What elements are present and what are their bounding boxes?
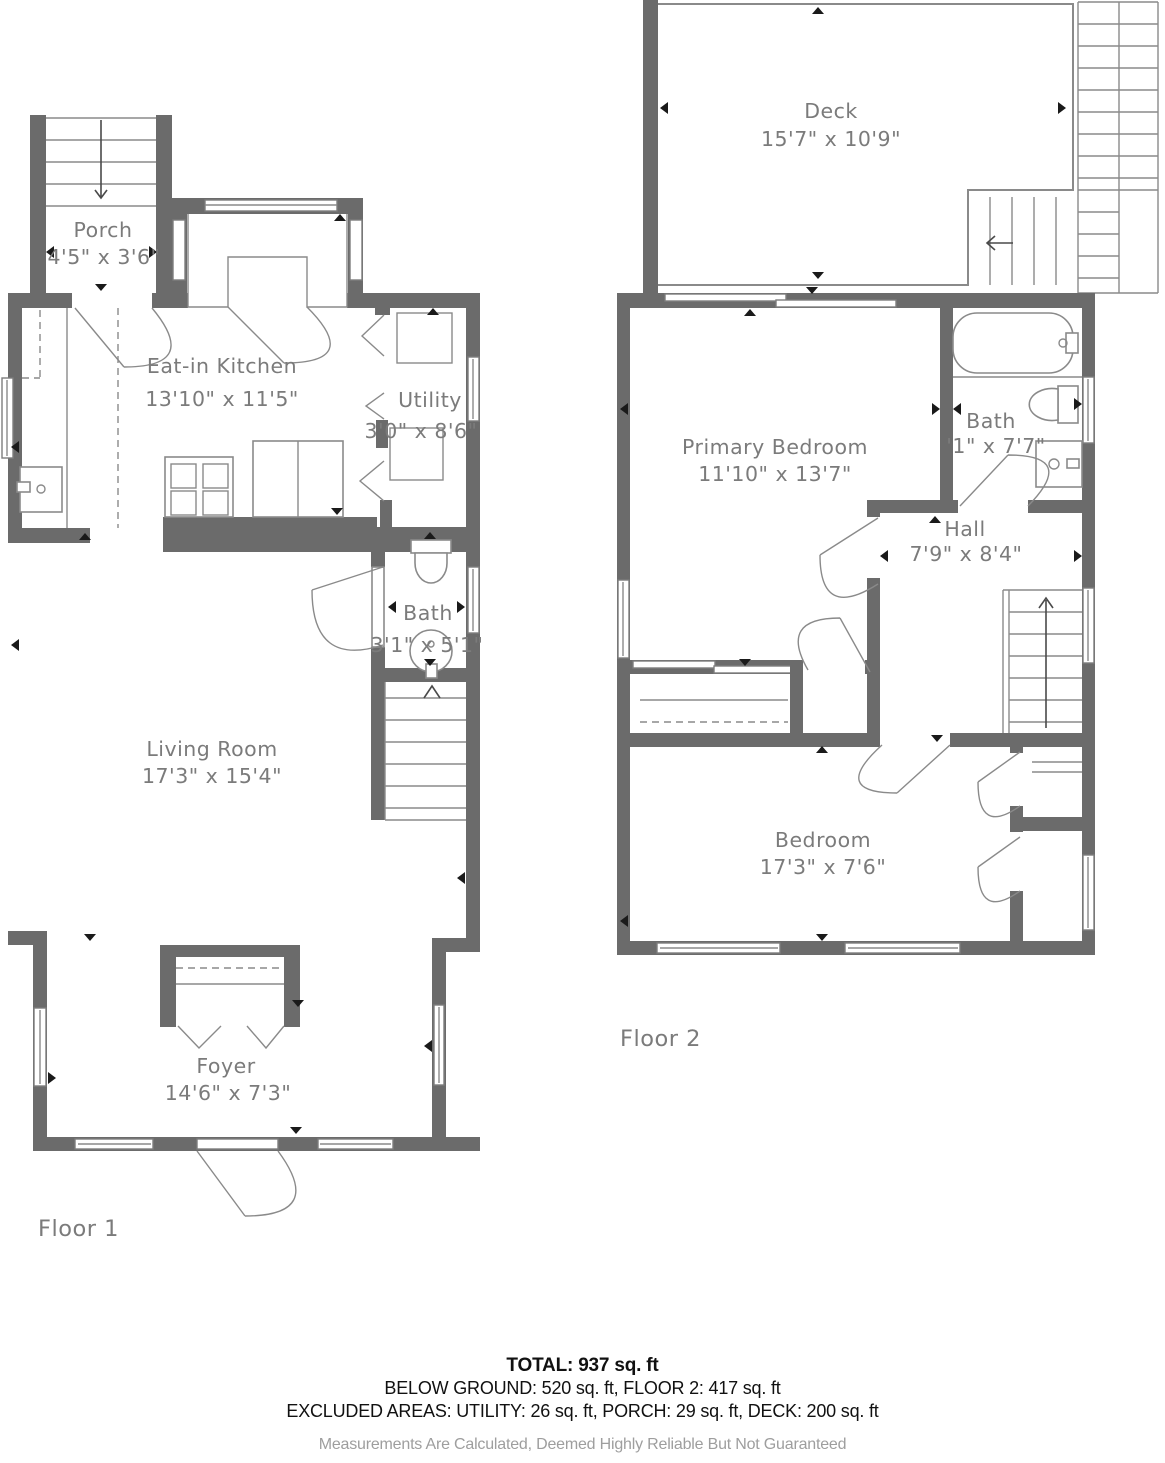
room-name: Bath xyxy=(966,409,1016,433)
room-label-hall: Hall 7'9" x 8'4" xyxy=(910,517,1023,566)
room-name: Porch xyxy=(74,218,133,242)
room-name: Eat-in Kitchen xyxy=(147,354,297,378)
room-name: Hall xyxy=(944,517,985,541)
room-name: Primary Bedroom xyxy=(682,435,868,459)
room-label-kitchen: Eat-in Kitchen 13'10" x 11'5" xyxy=(145,354,299,411)
summary-disclaimer: Measurements Are Calculated, Deemed High… xyxy=(0,1436,1165,1454)
room-dims: 11'10" x 13'7" xyxy=(698,462,852,486)
floor2-label: Floor 2 xyxy=(620,1026,701,1052)
room-dims: 14'6" x 7'3" xyxy=(165,1081,292,1105)
floor2-plan: Deck 15'7" x 10'9" Primary Bedroom 11'10… xyxy=(617,0,1158,1052)
room-label-living: Living Room 17'3" x 15'4" xyxy=(142,737,282,788)
floor1-plan: Porch 4'5" x 3'6" Eat-in Kitchen 13'10" … xyxy=(2,115,483,1242)
room-dims: 17'3" x 15'4" xyxy=(142,764,282,788)
room-label-bath2: Bath '1" x 7'7" xyxy=(946,409,1045,458)
room-dims: 13'10" x 11'5" xyxy=(145,387,299,411)
room-dims: 3'0" x 8'6" xyxy=(365,419,478,443)
summary-floors: BELOW GROUND: 520 sq. ft, FLOOR 2: 417 s… xyxy=(0,1377,1165,1400)
room-name: Living Room xyxy=(146,737,277,761)
room-dims: 15'7" x 10'9" xyxy=(761,127,901,151)
summary-excluded: EXCLUDED AREAS: UTILITY: 26 sq. ft, PORC… xyxy=(0,1400,1165,1423)
floor1-label: Floor 1 xyxy=(38,1216,119,1242)
room-name: Utility xyxy=(398,388,462,412)
room-label-porch: Porch 4'5" x 3'6" xyxy=(48,218,161,269)
primary-closet xyxy=(617,618,1095,793)
floorplan-page: { "floor1": { "label": "Floor 1", "rooms… xyxy=(0,0,1165,1463)
room-dims: 7'9" x 8'4" xyxy=(910,542,1023,566)
room-dims: 3'1" x 5'1" xyxy=(371,633,484,657)
room-name: Foyer xyxy=(196,1054,255,1078)
room-name: Bedroom xyxy=(775,828,871,852)
room-dims: '1" x 7'7" xyxy=(946,434,1045,458)
bedroom-closets xyxy=(978,747,1095,941)
room-dims: 4'5" x 3'6" xyxy=(48,245,161,269)
refrigerator xyxy=(253,441,343,517)
room-label-bedroom: Bedroom 17'3" x 7'6" xyxy=(760,828,887,879)
kitchen-sink xyxy=(17,467,62,512)
room-dims: 17'3" x 7'6" xyxy=(760,855,887,879)
room-label-deck: Deck 15'7" x 10'9" xyxy=(761,99,901,151)
room-name: Deck xyxy=(804,99,858,123)
summary-total: TOTAL: 937 sq. ft xyxy=(0,1354,1165,1377)
floor1-stairs xyxy=(371,682,466,820)
stove xyxy=(165,457,233,517)
summary-block: TOTAL: 937 sq. ft BELOW GROUND: 520 sq. … xyxy=(0,1354,1165,1454)
deck-stairs xyxy=(1078,2,1158,293)
utility-room xyxy=(360,303,452,530)
room-label-primary-bedroom: Primary Bedroom 11'10" x 13'7" xyxy=(682,435,868,486)
front-door xyxy=(197,1151,296,1216)
room-label-utility: Utility 3'0" x 8'6" xyxy=(365,388,478,443)
foyer-closet xyxy=(160,945,300,1048)
room-label-foyer: Foyer 14'6" x 7'3" xyxy=(165,1054,292,1105)
room-name: Bath xyxy=(403,601,453,625)
floorplan-drawing: Porch 4'5" x 3'6" Eat-in Kitchen 13'10" … xyxy=(0,0,1165,1463)
